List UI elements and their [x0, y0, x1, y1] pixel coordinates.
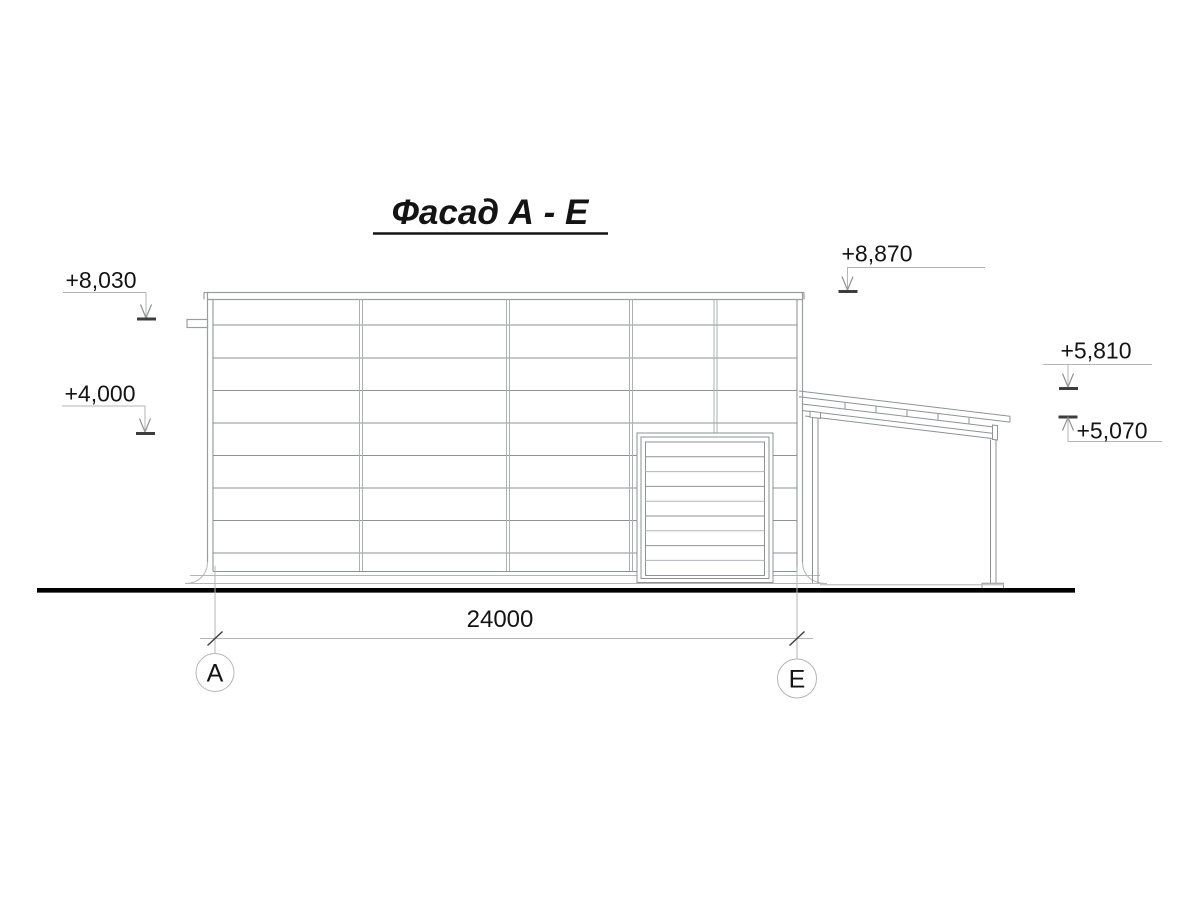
canopy-roof — [799, 391, 1010, 440]
parapet-band — [204, 293, 804, 300]
elevation-mark-parapet-left: +8,030 — [63, 267, 156, 319]
axis-marker-a: А — [196, 654, 234, 692]
canopy-right-post — [982, 440, 1004, 589]
beam-end-cap — [993, 425, 998, 440]
elevation-value: +8,870 — [842, 241, 913, 267]
elevation-mark-roof-top: +8,870 — [839, 241, 986, 292]
elevation-leader-line — [63, 293, 146, 317]
elevation-value: +5,070 — [1077, 418, 1148, 444]
facade-drawing-canvas: Фасад А - Е — [0, 0, 1200, 900]
sectional-gate — [637, 433, 773, 583]
axis-marker-e: Е — [778, 659, 817, 698]
dimension-value: 24000 — [467, 606, 534, 633]
elevation-leader-line — [1043, 365, 1152, 386]
elevation-leader-line — [62, 406, 145, 430]
drawing-title: Фасад А - Е — [373, 193, 608, 234]
axis-markers: А Е — [196, 654, 817, 699]
elevation-leader-line — [848, 268, 986, 289]
canopy — [799, 391, 1010, 588]
axis-letter: А — [207, 660, 224, 688]
elevation-value: +4,000 — [65, 381, 136, 407]
elevation-value: +8,030 — [66, 267, 137, 293]
canopy-roof-battens — [845, 403, 969, 424]
elevation-mark-canopy-low: +5,070 — [1059, 417, 1163, 444]
elevation-mark-canopy-high: +5,810 — [1043, 338, 1152, 389]
axis-letter: Е — [789, 666, 806, 694]
elevation-marks: +8,030 +4,000 +8,870 +5,810 — [62, 241, 1162, 444]
canopy-left-post — [810, 411, 821, 583]
page-title: Фасад А - Е — [392, 193, 590, 232]
elevation-mark-wall-mid: +4,000 — [62, 381, 155, 434]
facade-drawing-sheet: Фасад А - Е — [0, 0, 1200, 900]
elevation-value: +5,810 — [1061, 338, 1132, 364]
wall-bracket — [187, 320, 208, 328]
